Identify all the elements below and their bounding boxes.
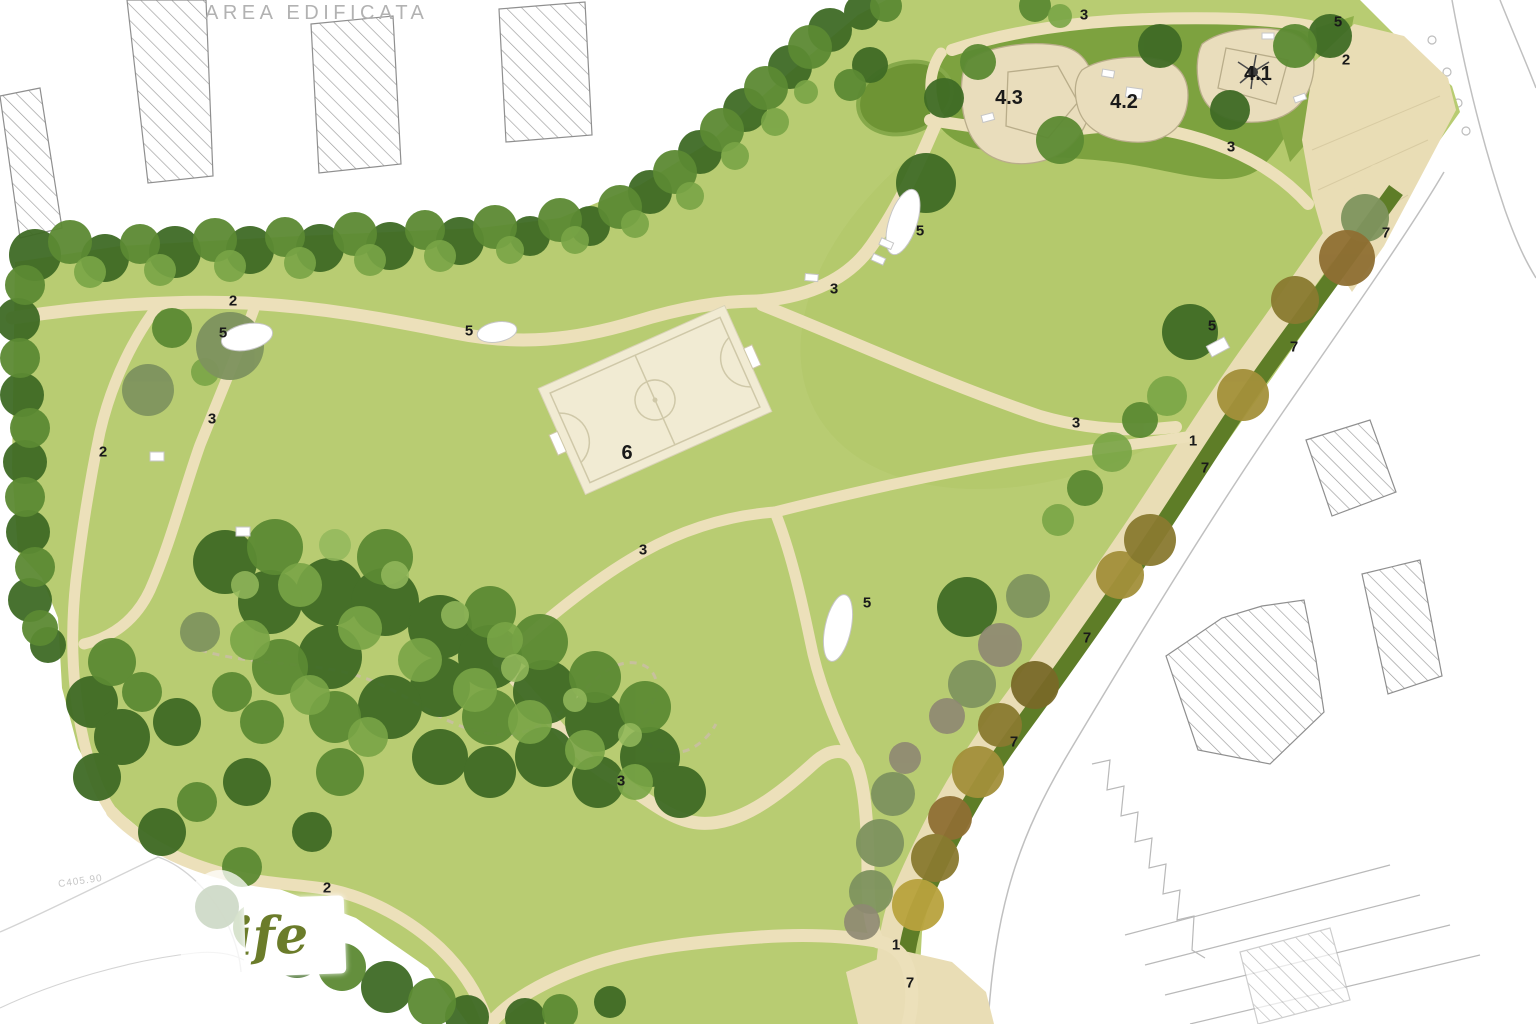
watermark-text: ife: [244, 910, 309, 965]
watermark: ife: [244, 895, 347, 976]
area-edificata-label: AREA EDIFICATA: [205, 2, 428, 25]
buildings-north: [0, 0, 592, 238]
building-southeast-outline: [1092, 760, 1480, 1024]
park-master-plan: AREA EDIFICATA C405.90 3524.14.34.237532…: [0, 0, 1536, 1024]
plan-drawing: [0, 0, 1536, 1024]
